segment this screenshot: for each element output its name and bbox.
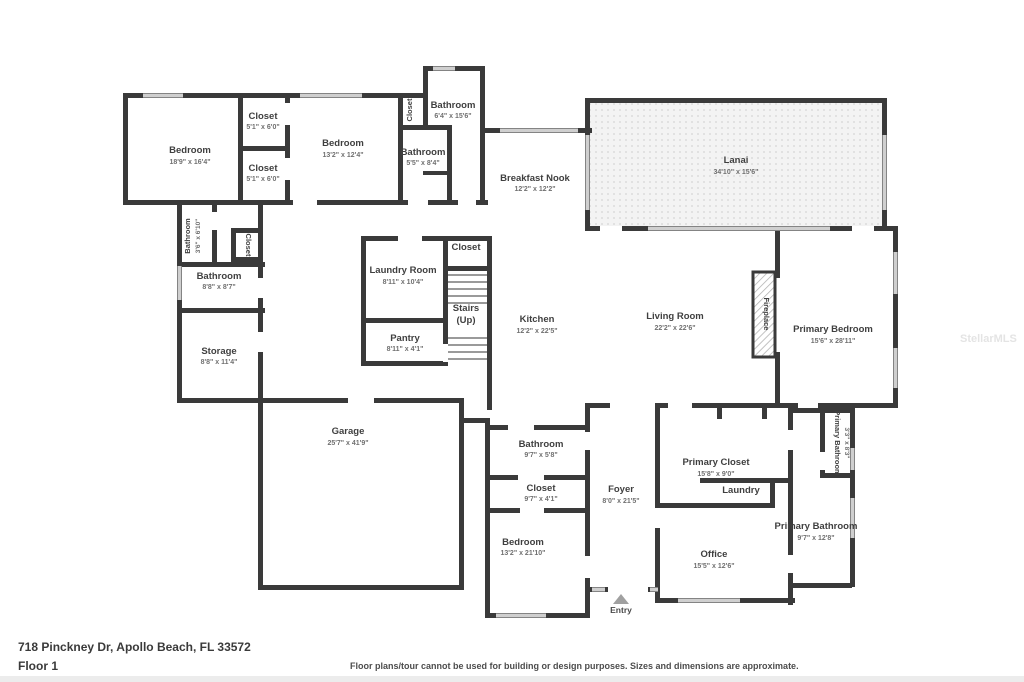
- label-lanai-dims: 34'10" x 15'6": [713, 169, 758, 176]
- label-bedroom-top-name: Bedroom: [322, 138, 364, 149]
- label-living-room-name: Living Room: [646, 311, 704, 322]
- label-closet-top-small: Closet: [405, 98, 414, 121]
- label-bedroom-bottom-dims: 13'2" x 21'10": [500, 550, 545, 557]
- label-primary-bedroom-dims: 15'6" x 28'11": [811, 338, 856, 345]
- label-bathroom-55-name: Bathroom: [401, 147, 446, 158]
- label-bathroom-88-dims: 8'8" x 8'7": [202, 284, 235, 291]
- label-lanai-name: Lanai: [724, 155, 749, 166]
- label-kitchen-name: Kitchen: [520, 314, 555, 325]
- label-foyer-name: Foyer: [608, 484, 634, 495]
- label-garage-dims: 25'7" x 41'9": [327, 440, 368, 447]
- floor-plan: Bedroom 18'9" x 16'4" Closet 5'1" x 6'0"…: [0, 0, 1024, 682]
- label-closet-top-b-name: Closet: [248, 163, 278, 174]
- label-pantry-name: Pantry: [390, 333, 420, 344]
- label-breakfast-nook-dims: 12'2" x 12'2": [514, 186, 555, 193]
- label-storage-name: Storage: [201, 346, 236, 357]
- label-storage-dims: 8'8" x 11'4": [201, 359, 238, 366]
- address-text: 718 Pinckney Dr, Apollo Beach, FL 33572: [18, 640, 251, 654]
- label-primary-bathroom-small-dims: 3'3" x 8'3": [843, 428, 850, 459]
- label-stairs-name: Stairs: [453, 303, 479, 314]
- label-bathroom-55-dims: 5'5" x 8'4": [406, 160, 439, 167]
- label-foyer-dims: 8'0" x 21'5": [602, 498, 639, 505]
- label-closet-97-name: Closet: [526, 483, 556, 494]
- label-laundry-room-dims: 8'11" x 10'4": [383, 279, 424, 286]
- label-bathroom-top-dims: 6'4" x 15'6": [434, 113, 471, 120]
- label-bedroom-left-dims: 18'9" x 16'4": [169, 159, 210, 166]
- label-bathroom-88-name: Bathroom: [197, 271, 242, 282]
- label-primary-bathroom-name: Primary Bathroom: [775, 521, 858, 532]
- label-stairs-up: (Up): [457, 315, 476, 326]
- label-primary-closet-dims: 15'8" x 9'0": [697, 471, 734, 478]
- label-closet-top-b-dims: 5'1" x 6'0": [246, 176, 279, 183]
- label-primary-bathroom-small-name: Primary Bathroom: [833, 410, 842, 476]
- disclaimer-text: Floor plans/tour cannot be used for buil…: [350, 661, 799, 671]
- label-primary-closet-name: Primary Closet: [682, 457, 750, 468]
- label-office-name: Office: [701, 549, 728, 560]
- entry-arrow-icon: [613, 594, 629, 604]
- label-bathroom-97-dims: 9'7" x 5'8": [524, 452, 557, 459]
- bottom-strip: [0, 676, 1024, 682]
- label-living-room-dims: 22'2" x 22'6": [654, 325, 695, 332]
- label-kitchen-dims: 12'2" x 22'5": [516, 328, 557, 335]
- label-fireplace: Fireplace: [762, 298, 771, 331]
- label-bathroom-left-small-dims: 3'6" x 6'10": [195, 219, 202, 254]
- label-bedroom-left-name: Bedroom: [169, 145, 211, 156]
- label-laundry-room-name: Laundry Room: [369, 265, 436, 276]
- label-laundry: Laundry: [722, 485, 760, 496]
- label-bathroom-top-name: Bathroom: [431, 100, 476, 111]
- label-garage-name: Garage: [332, 426, 365, 437]
- label-closet-top-a-dims: 5'1" x 6'0": [246, 124, 279, 131]
- label-breakfast-nook-name: Breakfast Nook: [500, 173, 570, 184]
- label-bedroom-bottom-name: Bedroom: [502, 537, 544, 548]
- label-closet-hall: Closet: [244, 234, 253, 257]
- label-entry: Entry: [610, 605, 632, 615]
- watermark: StellarMLS: [960, 333, 1017, 345]
- label-closet-97-dims: 9'7" x 4'1": [524, 496, 557, 503]
- label-bathroom-97-name: Bathroom: [519, 439, 564, 450]
- label-closet-top-a-name: Closet: [248, 111, 278, 122]
- label-primary-bathroom-dims: 9'7" x 12'8": [797, 535, 834, 542]
- label-primary-bedroom-name: Primary Bedroom: [793, 324, 873, 335]
- label-bathroom-left-small-name: Bathroom: [183, 218, 192, 254]
- label-office-dims: 15'5" x 12'6": [693, 563, 734, 570]
- floor-label: Floor 1: [18, 659, 58, 673]
- floor-plan-page: Bedroom 18'9" x 16'4" Closet 5'1" x 6'0"…: [0, 0, 1024, 682]
- label-bedroom-top-dims: 13'2" x 12'4": [322, 152, 363, 159]
- label-pantry-dims: 8'11" x 4'1": [387, 346, 424, 353]
- label-closet-stairs: Closet: [451, 242, 481, 253]
